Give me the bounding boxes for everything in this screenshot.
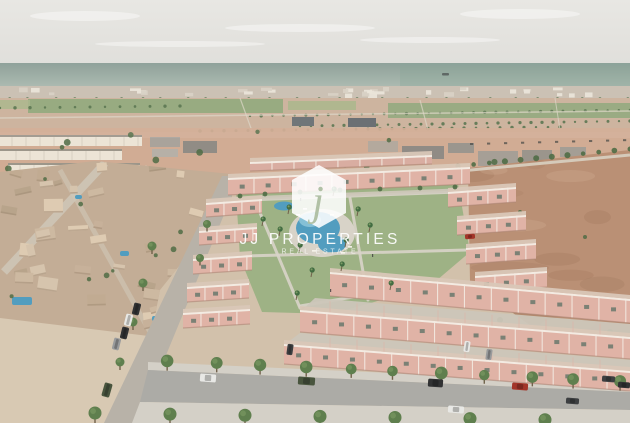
aerial-property-render: j JJ PROPERTIES REAL ESTATE — [0, 0, 630, 423]
watermark-brand-text: JJ PROPERTIES — [239, 231, 400, 248]
watermark-tagline-text: REAL ESTATE — [282, 249, 359, 256]
render-scene: j JJ PROPERTIES REAL ESTATE — [0, 0, 630, 423]
